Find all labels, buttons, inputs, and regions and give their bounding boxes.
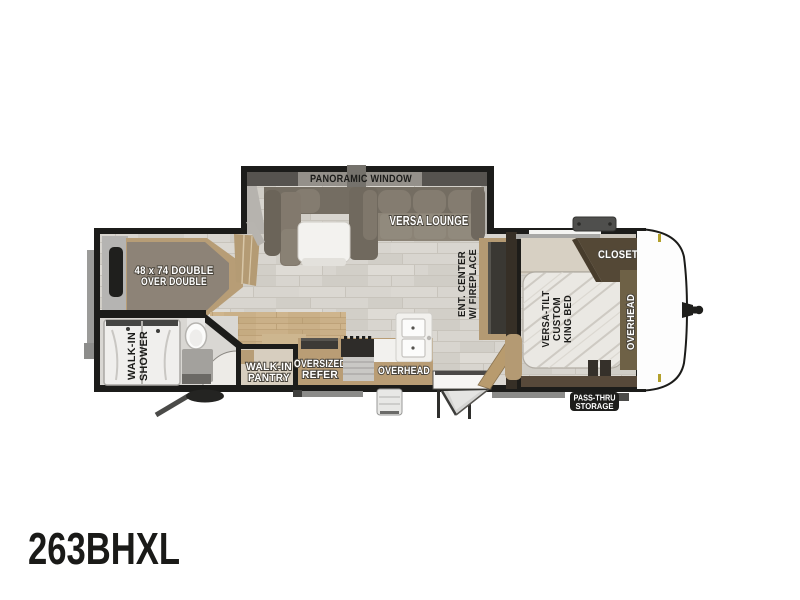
- svg-text:OVERHEAD: OVERHEAD: [626, 294, 637, 350]
- svg-text:CUSTOM: CUSTOM: [552, 297, 563, 341]
- svg-text:VERSA LOUNGE: VERSA LOUNGE: [390, 213, 469, 228]
- svg-text:W/ FIREPLACE: W/ FIREPLACE: [468, 249, 479, 319]
- svg-text:STORAGE: STORAGE: [576, 401, 614, 411]
- svg-text:263BHXL: 263BHXL: [28, 523, 180, 574]
- svg-text:OVER DOUBLE: OVER DOUBLE: [141, 276, 207, 288]
- svg-text:PANORAMIC WINDOW: PANORAMIC WINDOW: [310, 173, 412, 185]
- svg-text:VERSA-TILT: VERSA-TILT: [541, 291, 552, 348]
- svg-text:PANTRY: PANTRY: [248, 372, 290, 384]
- svg-text:WALK-IN: WALK-IN: [126, 332, 138, 380]
- svg-text:OVERHEAD: OVERHEAD: [378, 365, 430, 377]
- svg-text:SHOWER: SHOWER: [138, 331, 150, 381]
- svg-text:KING BED: KING BED: [563, 295, 574, 343]
- svg-text:ENT. CENTER: ENT. CENTER: [457, 251, 468, 317]
- svg-text:REFER: REFER: [302, 369, 338, 381]
- svg-text:CLOSET: CLOSET: [598, 249, 638, 261]
